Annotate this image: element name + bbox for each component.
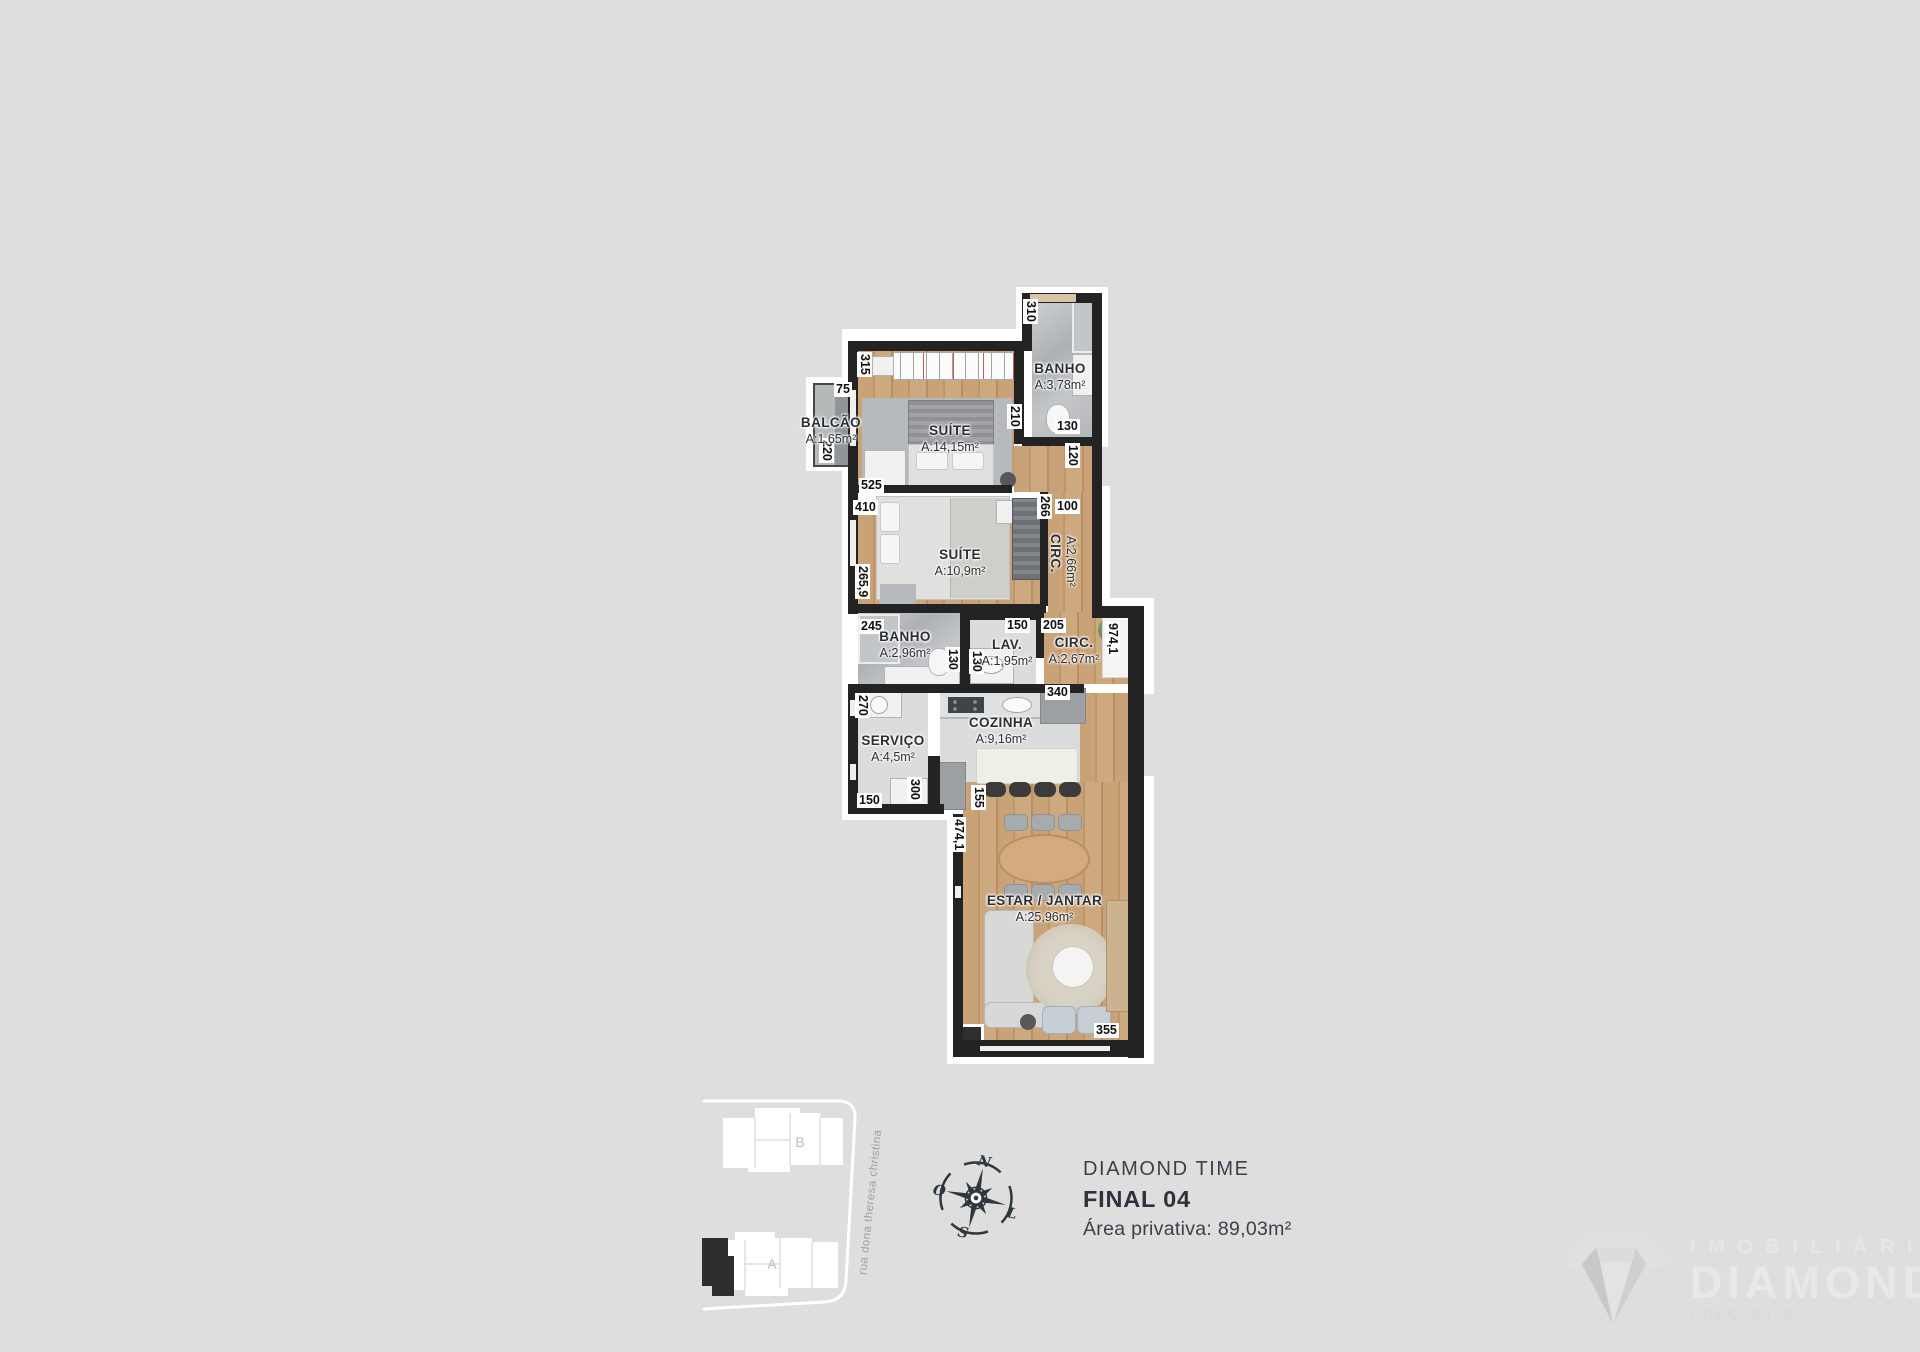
side-table [1020,1014,1036,1030]
project-name: DIAMOND TIME [1083,1158,1292,1181]
compass-north: N [975,1152,993,1172]
room-label: BALCÃOA:1,65m² [786,415,876,448]
pillow [880,534,900,564]
room-name: CIRC. [1034,635,1114,652]
dimension-label: 150 [1005,618,1030,633]
room-name: ESTAR / JANTAR [974,893,1115,910]
dimension-label: 310 [1023,299,1038,324]
dimension-label: 75 [834,382,852,397]
room-label: BANHOA:2,96m² [853,629,957,662]
watermark-line1: IMOBILIÁRIA [1690,1236,1920,1259]
room-area: A:3,78m² [1018,378,1102,394]
floorplan-page: { "floorplan": { "rooms": [ {"name":"BAL… [0,0,1920,1352]
window-opening [850,764,856,780]
sofa-chaise [984,1002,1048,1028]
room-name: SUÍTE [898,423,1002,440]
room-name: SUÍTE [908,547,1012,564]
compass-west: O [931,1181,947,1200]
private-area: Área privativa: 89,03m² [1083,1218,1292,1241]
room-name: CIRC. [1048,534,1063,573]
watermark-line2: DIAMOND [1690,1259,1920,1306]
dimension-label: 270 [855,693,870,718]
room-name: SERVIÇO [843,733,943,750]
kitchen-sink [1002,697,1032,713]
compass-south: S [956,1223,970,1242]
unit-number: FINAL 04 [1083,1186,1292,1213]
pillow [880,502,900,532]
site-building-b: B [723,1108,843,1172]
dimension-label: 355 [1094,1023,1119,1038]
room-area: A:10,9m² [908,564,1012,580]
room-area: A:4,5m² [843,750,943,766]
dining-chair [1058,814,1082,831]
site-plan: B A rua dona theresa christina [692,1088,882,1323]
room-name: BANHO [1018,361,1102,378]
nightstand [872,356,894,376]
wall [848,341,1032,351]
room-area: A:2,67m² [1034,652,1114,668]
unit-info: DIAMOND TIME FINAL 04 Área privativa: 89… [1083,1158,1292,1241]
dimension-label: 150 [857,793,882,808]
compass-east: L [1004,1204,1019,1223]
window-opening [850,520,856,566]
tank-basin [870,696,888,714]
room-label: BANHOA:3,78m² [1018,361,1102,394]
room-label: COZINHAA:9,16m² [951,715,1051,748]
dimension-label: 265,9 [855,564,870,599]
room-area: A:9,16m² [951,732,1051,748]
dimension-label: 266 [1037,494,1052,519]
room-area: A:2,66m² [1064,536,1078,587]
coffee-table [1052,946,1094,988]
room-name: BALCÃO [786,415,876,432]
bar-stool [1034,782,1056,797]
dimension-label: 100 [1055,499,1080,514]
stove [948,697,984,713]
wood-floor [1080,693,1128,782]
bar-stool [1059,782,1081,797]
wall [1128,612,1144,1058]
dimension-label: 315 [857,352,872,377]
window-opening [980,1046,1110,1051]
agency-watermark: IMOBILIÁRIA DIAMOND CRECI 5435J [1548,1222,1920,1352]
room-area: A:14,15m² [898,440,1002,456]
dimension-label: 474,1 [951,817,966,852]
site-building-a: A [702,1232,838,1296]
dimension-label: 130 [1055,419,1080,434]
dimension-label: 205 [1041,618,1066,633]
compass-rose: N O S L [928,1150,1024,1246]
bar-stool [1009,782,1031,797]
window-opening [955,886,961,898]
dimension-label: 155 [971,785,986,810]
room-area: A:1,65m² [786,432,876,448]
room-label: SERVIÇOA:4,5m² [843,733,943,766]
wardrobe [893,352,1023,380]
diamond-logo-icon [1548,1222,1678,1332]
room-label: CIRC.A:2,67m² [1034,635,1114,668]
bar-stool [984,782,1006,797]
dimension-label: 210 [1007,404,1022,429]
building-b-label: B [795,1134,804,1150]
room-area: A:2,96m² [853,646,957,662]
watermark-line3: CRECI 5435J [1690,1306,1920,1323]
armchair [1042,1006,1076,1034]
dining-chair [1004,814,1028,831]
dining-chair [1031,814,1055,831]
room-label: SUÍTEA:14,15m² [898,423,1002,456]
dimension-label: 525 [859,478,884,493]
dining-table [998,834,1090,884]
dimension-label: 120 [1065,443,1080,468]
dimension-label: 410 [853,500,878,515]
building-a-label: A [767,1256,777,1272]
street-name: rua dona theresa christina [857,1129,882,1276]
room-area: A:25,96m² [974,910,1115,926]
dimension-label: 340 [1045,685,1070,700]
wall [1092,293,1102,618]
kitchen-island [976,748,1078,784]
wall [1022,437,1096,446]
room-label: ESTAR / JANTARA:25,96m² [974,893,1115,926]
room-label: SUÍTEA:10,9m² [908,547,1012,580]
dimension-label: 300 [907,777,922,802]
wood-floor [1014,446,1092,492]
room-name: BANHO [853,629,957,646]
room-name: COZINHA [951,715,1051,732]
